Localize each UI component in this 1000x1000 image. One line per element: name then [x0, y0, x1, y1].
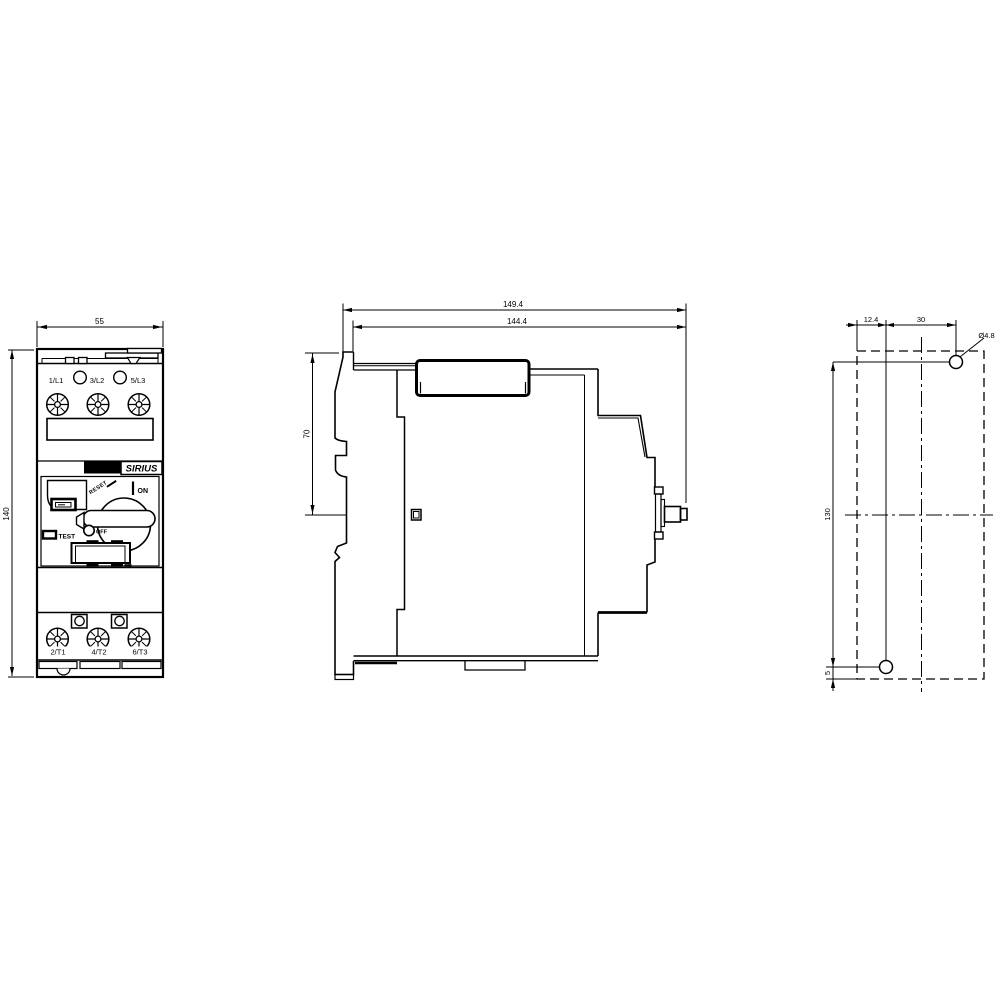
arrowhead [310, 354, 314, 363]
dim-depth-144: 144.4 [353, 317, 686, 352]
top-strip [354, 364, 418, 371]
dim-width-55: 55 [37, 317, 163, 347]
arrowhead [831, 362, 835, 371]
terminal-screw [87, 394, 109, 416]
knob-shaft [655, 487, 688, 539]
dim-label: 70 [303, 429, 312, 438]
arrowhead [10, 350, 14, 359]
arrowhead [947, 323, 956, 327]
terminal-screw [47, 394, 69, 416]
terminal-label: 2/T1 [50, 648, 65, 657]
dim-label: 130 [823, 508, 832, 521]
dim-label: 12.4 [864, 315, 879, 324]
terminal-cover [417, 361, 530, 396]
dim-din-clip-70: 70 [303, 353, 347, 515]
dim-hole-y: 130 5 [823, 362, 835, 691]
arrowhead [886, 323, 894, 327]
arrowhead [831, 679, 835, 688]
din-rail-profile [335, 352, 354, 675]
hole-diameter-callout: Ø4.8 [961, 331, 995, 357]
arrowhead [848, 323, 857, 327]
terminal-label: 4/T2 [91, 648, 106, 657]
dim-label: 55 [95, 317, 104, 326]
mounting-hole-bottom [880, 661, 893, 674]
arrowhead [677, 308, 686, 312]
terminal-label: 1/L1 [49, 376, 64, 385]
bottom-strip [354, 656, 599, 670]
front-bezel [529, 369, 655, 656]
dim-label: 30 [917, 315, 925, 324]
terminal-label: 6/T3 [132, 648, 147, 657]
mounting-view: 12.4 30 130 5 Ø4.8 [823, 315, 995, 692]
on-label: ON [138, 488, 149, 495]
arrowhead [677, 325, 686, 329]
latch-window [412, 510, 422, 521]
arrowhead [343, 308, 352, 312]
dim-hole-x: 12.4 30 [846, 315, 956, 327]
arrowhead [10, 667, 14, 676]
arrowhead [38, 325, 47, 329]
test-label: TEST [59, 534, 76, 541]
sirius-label: SIRIUS [126, 464, 158, 475]
arrowhead [353, 325, 362, 329]
dim-label: 149.4 [503, 300, 524, 309]
mounting-hole-top [950, 356, 963, 369]
dim-depth-149: 149.4 [343, 300, 686, 503]
dim-label: Ø4.8 [978, 331, 994, 340]
siemens-badge-label: SIEMENS [90, 467, 115, 473]
body-rear-edge [397, 370, 405, 656]
arrowhead [878, 323, 886, 327]
arrowhead [153, 325, 162, 329]
dim-label: 144.4 [507, 317, 528, 326]
knob-handle [83, 511, 155, 528]
dim-height-140: 140 [2, 350, 34, 677]
arrowhead [831, 658, 835, 667]
off-label: OFF [96, 530, 108, 536]
terminal-label: 5/L3 [131, 376, 146, 385]
test-button-icon [43, 531, 56, 539]
dim-label: 140 [2, 507, 11, 521]
front-view: 55 140 1/L1 3/L2 5/L [2, 317, 163, 677]
arrowhead [310, 505, 314, 514]
side-view: 149.4 144.4 70 [303, 300, 688, 680]
label-window [72, 540, 132, 567]
terminal-label: 3/L2 [90, 376, 105, 385]
dim-label: 5 [823, 671, 832, 675]
dimension-drawing: 55 140 1/L1 3/L2 5/L [0, 0, 1000, 1000]
terminal-screw [128, 394, 150, 416]
